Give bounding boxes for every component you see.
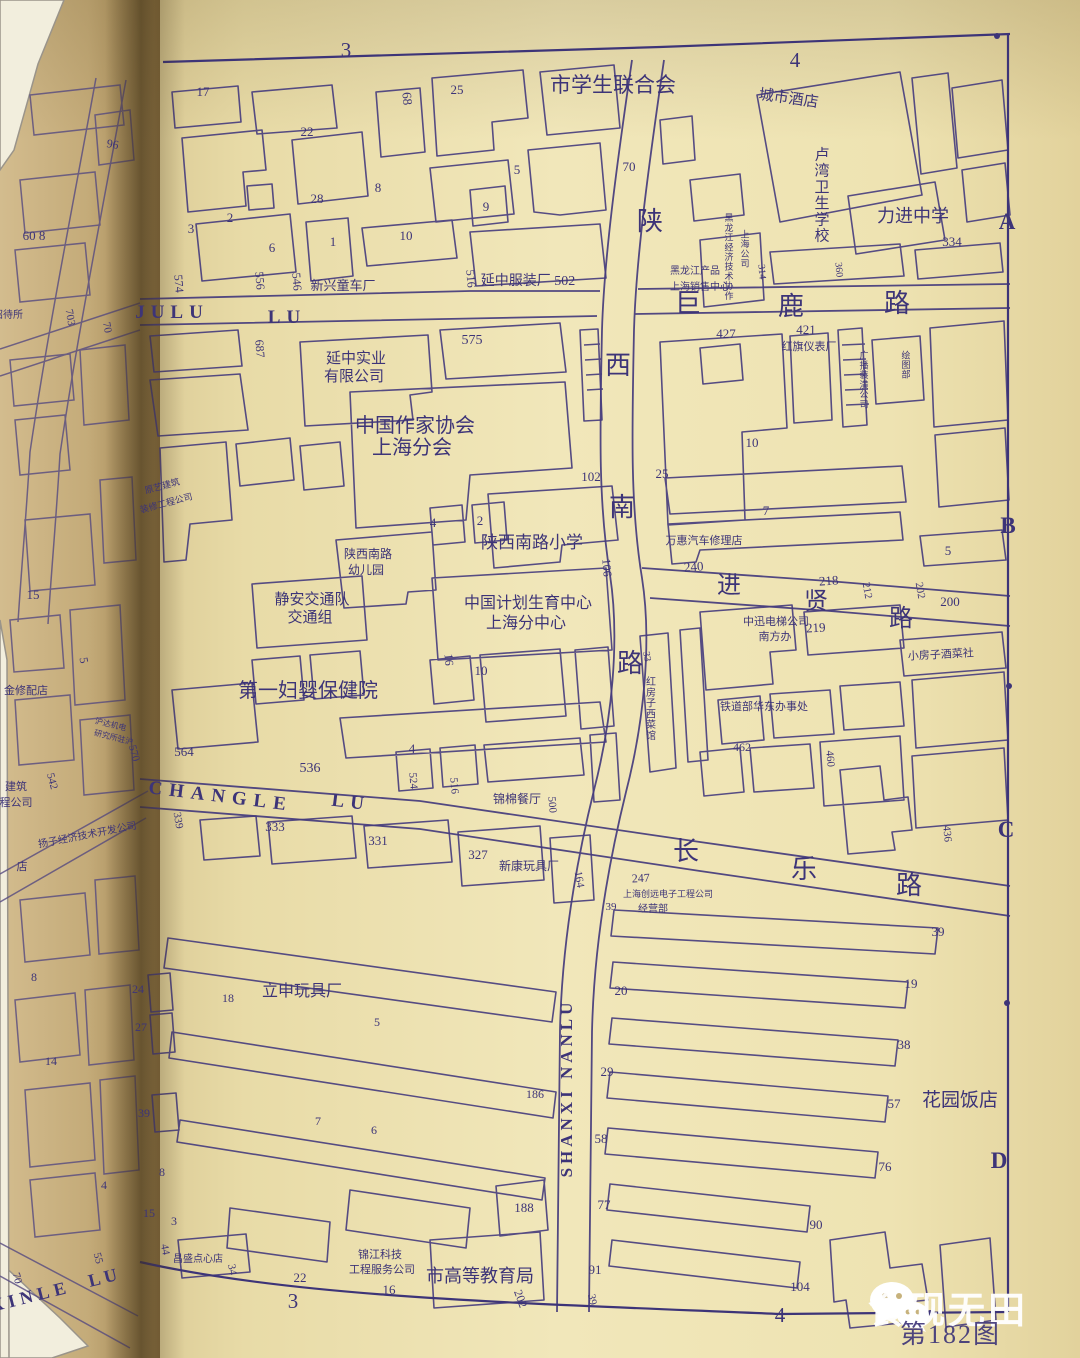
- house-number: 556: [252, 271, 268, 290]
- house-number: 200: [940, 594, 960, 609]
- road-name: SHANXI NANLU: [557, 999, 576, 1178]
- place-label: 中国计划生育中心: [464, 594, 592, 612]
- house-number: 15: [27, 587, 40, 602]
- house-number: 186: [526, 1087, 544, 1101]
- house-number: 57: [888, 1096, 902, 1111]
- house-number: 104: [790, 1279, 810, 1294]
- house-number: 460: [823, 750, 836, 768]
- house-number: 16: [441, 653, 456, 666]
- place-label: 卢湾卫生学校: [814, 147, 829, 245]
- house-number: 10: [400, 228, 413, 243]
- place-label: 建筑: [5, 779, 27, 793]
- house-number: 22: [294, 1270, 307, 1285]
- house-number: 247: [631, 871, 650, 886]
- house-number: 536: [300, 761, 321, 776]
- house-number: 427: [716, 326, 736, 341]
- house-number: 6: [371, 1123, 377, 1137]
- house-number: 39: [138, 1106, 150, 1120]
- place-label: 新康玩具厂: [499, 858, 559, 873]
- house-number: 24: [132, 982, 144, 996]
- place-label: 昌盛点心店: [173, 1252, 223, 1265]
- house-number: 16: [383, 1282, 397, 1297]
- place-label: 锦棉餐厅: [493, 791, 541, 806]
- house-number: 28: [311, 191, 324, 206]
- place-label: 立申玩具厂: [262, 982, 342, 1000]
- house-number: 91: [589, 1262, 602, 1277]
- house-number: 8: [159, 1165, 165, 1179]
- place-label: 黑龙江产品: [670, 264, 720, 277]
- place-label: 红旗仪表厂: [782, 339, 837, 353]
- place-label: 红房子西菜馆: [646, 675, 656, 742]
- house-number: 7: [763, 503, 770, 518]
- place-label: 第一妇婴保健院: [238, 679, 378, 702]
- place-label: 延中服装厂 502: [481, 273, 576, 289]
- place-label: 经营部: [638, 902, 668, 915]
- house-number: 10: [746, 435, 759, 450]
- house-number: 19: [905, 976, 918, 991]
- house-number: 22: [301, 124, 314, 139]
- place-label: 新兴童车厂: [310, 278, 375, 293]
- house-number: 9: [483, 199, 490, 214]
- road-name: 长: [673, 837, 699, 866]
- house-number: 1: [330, 234, 337, 249]
- grid-label: 4: [790, 48, 801, 72]
- place-label: 有限公司: [324, 368, 384, 385]
- place-label: 市学生联合会: [550, 73, 676, 97]
- road-name: LU: [268, 307, 306, 328]
- house-number: 4: [101, 1178, 107, 1192]
- atlas-page-photo: 34ABCD34市学生联合会城市酒店卢湾卫生学校力进中学334360314黑龙江…: [0, 0, 1080, 1358]
- place-label: 工程服务公司: [349, 1263, 415, 1276]
- grid-label: D: [991, 1148, 1008, 1173]
- house-number: 4: [430, 515, 437, 530]
- house-number: 2: [227, 210, 234, 225]
- place-label: 锦江科技: [358, 1247, 402, 1261]
- place-label: 力进中学: [877, 206, 949, 226]
- house-number: 33: [640, 651, 653, 663]
- house-number: 5: [945, 543, 952, 558]
- place-label: 中迅电梯公司: [743, 615, 809, 628]
- house-number: 106: [599, 558, 615, 577]
- street-map: 34ABCD34市学生联合会城市酒店卢湾卫生学校力进中学334360314黑龙江…: [0, 0, 1080, 1358]
- house-number: 3: [171, 1214, 177, 1228]
- house-number: 500: [545, 796, 558, 814]
- road-name: 路: [617, 649, 643, 678]
- place-label: 招待所: [0, 308, 23, 321]
- road-name: 路: [896, 871, 922, 900]
- grid-label: C: [998, 817, 1015, 842]
- house-number: 7: [315, 1114, 321, 1128]
- house-number: 188: [514, 1200, 534, 1215]
- house-number: 331: [368, 833, 388, 848]
- house-number: 27: [135, 1020, 147, 1034]
- place-label: 南方办: [759, 629, 792, 643]
- house-number: 575: [462, 333, 483, 348]
- place-label: 铁道部华东办事处: [720, 699, 808, 713]
- house-number: 96: [106, 136, 120, 152]
- place-label: 花园饭店: [922, 1089, 998, 1111]
- place-label: 中国作家协会: [355, 414, 475, 437]
- house-number: 327: [468, 847, 488, 862]
- place-label: 金修配店: [4, 683, 48, 697]
- house-number: 240: [683, 558, 703, 574]
- house-number: 17: [197, 84, 211, 99]
- house-number: 60 8: [23, 228, 46, 243]
- grid-label: 3: [341, 38, 352, 62]
- house-number: 546: [289, 272, 305, 291]
- house-number: 77: [598, 1197, 612, 1212]
- house-number: 39: [606, 901, 618, 913]
- road-name: 路: [889, 605, 913, 632]
- house-number: 8: [375, 180, 382, 195]
- house-number: 29: [601, 1064, 614, 1079]
- place-label: 绘图部: [901, 349, 910, 379]
- house-number: 8: [31, 970, 37, 984]
- road-name: 进: [717, 573, 741, 599]
- page-fold-shadow: [105, 0, 185, 1358]
- road-name: 西: [605, 351, 631, 380]
- place-label: 上海公司: [740, 229, 749, 268]
- place-label: 陕西南路小学: [481, 533, 583, 552]
- house-number: 10: [475, 663, 488, 678]
- place-label: 上海分会: [372, 436, 452, 459]
- place-label: 陕西南路: [344, 546, 392, 561]
- house-number: 5: [374, 1015, 380, 1029]
- road-name: 陕: [637, 207, 663, 236]
- road-name: 南: [609, 493, 635, 522]
- house-number: 687: [252, 339, 268, 358]
- place-label: 市高等教育局: [426, 1266, 534, 1286]
- house-number: 564: [174, 744, 194, 759]
- place-label: 店: [17, 859, 28, 873]
- place-label: 交通组: [287, 608, 332, 626]
- place-label: 万惠汽车修理店: [666, 533, 743, 547]
- figure-caption: 第182图: [900, 1314, 1070, 1351]
- place-label: 上海分中心: [486, 614, 566, 632]
- place-label: 程公司: [0, 796, 33, 809]
- house-number: 39: [932, 924, 945, 939]
- house-number: 14: [45, 1054, 57, 1068]
- grid-label: 3: [288, 1289, 299, 1313]
- house-number: 20: [615, 983, 628, 998]
- house-number: 421: [796, 322, 816, 337]
- house-number: 462: [733, 740, 751, 754]
- road-name: 巨: [675, 289, 701, 318]
- house-number: 58: [595, 1131, 608, 1146]
- house-number: 15: [143, 1206, 155, 1220]
- house-number: 76: [879, 1159, 893, 1174]
- house-number: 574: [171, 274, 187, 293]
- house-number: 218: [818, 572, 838, 588]
- house-number: 25: [451, 82, 464, 97]
- road-name: JULU: [135, 302, 209, 323]
- grid-label: B: [1000, 513, 1015, 538]
- house-number: 360: [832, 262, 844, 278]
- house-number: 314: [755, 264, 767, 280]
- grid-label: 4: [775, 1303, 786, 1327]
- place-label: 延中实业: [326, 350, 386, 367]
- house-number: 90: [810, 1217, 823, 1232]
- road-name: 乐: [791, 855, 817, 884]
- house-number: 4: [409, 741, 416, 756]
- house-number: 5: [514, 162, 521, 177]
- place-label: 上海创远电子工程公司: [623, 888, 713, 899]
- place-label: 静安交通队: [274, 590, 349, 608]
- house-number: 68: [399, 91, 415, 105]
- house-number: 18: [222, 991, 234, 1005]
- house-number: 516: [447, 777, 460, 795]
- house-number: 333: [265, 819, 285, 834]
- house-number: 38: [898, 1037, 911, 1052]
- house-number: 25: [656, 466, 669, 481]
- house-number: 70: [623, 159, 636, 174]
- house-number: 334: [942, 234, 962, 249]
- house-number: 436: [940, 825, 953, 843]
- road-name: 鹿: [778, 292, 804, 321]
- house-number: 102: [581, 469, 601, 484]
- house-number: 3: [188, 221, 195, 236]
- house-number: 524: [406, 772, 419, 790]
- house-number: 516: [463, 269, 479, 288]
- grid-label: A: [999, 209, 1016, 234]
- place-label: 幼儿园: [348, 563, 384, 577]
- road-name: 贤: [804, 588, 828, 615]
- house-number: 2: [477, 513, 484, 528]
- place-label: 广播装潢公司: [859, 350, 868, 410]
- house-number: 6: [269, 240, 276, 255]
- road-name: 路: [884, 289, 910, 318]
